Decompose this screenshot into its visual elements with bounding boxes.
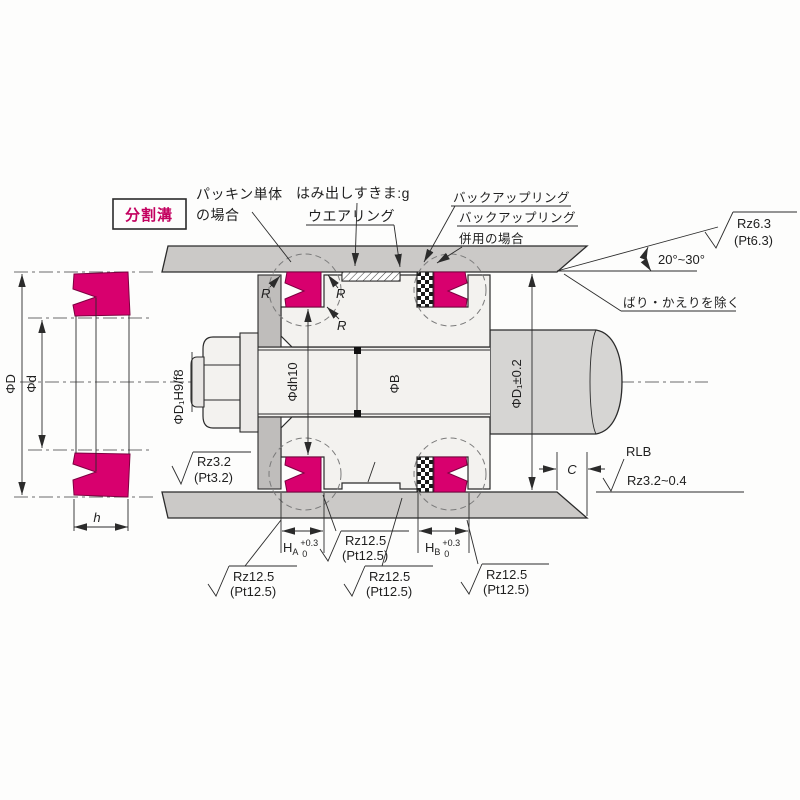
rlb-label: RLB (626, 444, 651, 459)
drawing-canvas: ΦD Φd h (0, 0, 800, 800)
cylinder-tube-bottom (162, 492, 587, 518)
rz125-label-1: Rz12.5 (345, 533, 386, 548)
seal-profile-top (73, 272, 130, 316)
rlb-range-label: Rz3.2~0.4 (627, 473, 687, 488)
packing-bottom-left (285, 457, 321, 492)
rod-stud-end (191, 357, 204, 407)
packing-only-label-1: パッキン単体 (196, 186, 283, 202)
dim-square-shank-bottom (354, 410, 361, 417)
packing-top-left (285, 272, 321, 307)
deburr-leader (564, 274, 621, 311)
packing-only-label-2: の場合 (196, 207, 240, 223)
retainer-plate-lower (258, 417, 281, 489)
dim-label-c: C (567, 462, 577, 477)
roughness-check-rz125-3 (344, 566, 365, 596)
r-label-3: R (337, 318, 346, 333)
dim-label-bore: ΦD₁±0.2 (509, 359, 524, 408)
hb-tol-dn: 0 (444, 549, 449, 559)
rz125-label-3: Rz12.5 (369, 569, 410, 584)
dim-label-shank: ΦB (387, 374, 402, 393)
pt125-label-3: (Pt12.5) (366, 584, 412, 599)
washer (240, 333, 258, 432)
backup-ring-top (417, 272, 433, 307)
seal-installation-diagram: ΦD Φd h (0, 0, 800, 800)
dim-label-fit-spec: ΦD₁H9/f8 (171, 369, 186, 424)
backup-combined-label-2: 併用の場合 (459, 231, 524, 246)
pt125-label-2: (Pt12.5) (230, 584, 276, 599)
r-label-2: R (336, 286, 345, 301)
hb-tol-up: +0.3 (442, 538, 460, 548)
dim-label-seal-id: Φd (24, 375, 39, 393)
roughness-check-rz125-4 (461, 564, 482, 594)
rz63-label: Rz6.3 (737, 216, 771, 231)
chamfer-annotations: 20°~30° Rz6.3 (Pt6.3) ばり・かえりを除く (557, 212, 797, 311)
ha-tol-up: +0.3 (300, 538, 318, 548)
backup-ring-label: バックアップリング (453, 191, 570, 205)
rz125-leader-2 (245, 520, 281, 566)
dim-label-h: h (93, 510, 100, 525)
hb-sub: B (434, 547, 440, 557)
roughness-check-rlb (603, 459, 624, 491)
rz125-label-4: Rz12.5 (486, 567, 527, 582)
extrusion-gap-label: はみ出しすきま:g (296, 185, 410, 201)
split-groove-label: 分割溝 (125, 206, 173, 224)
roughness-check-rz125-2 (208, 566, 229, 596)
rz125-label-2: Rz12.5 (233, 569, 274, 584)
deburr-label: ばり・かえりを除く (623, 295, 740, 310)
backup-combined-label-1: バックアップリング (459, 211, 576, 225)
packing-top-right (434, 272, 467, 307)
backup-ring-bottom (417, 457, 433, 492)
rz32-label: Rz3.2 (197, 454, 231, 469)
seal-profile-bottom (73, 453, 130, 497)
roughness-check-rz32 (172, 452, 193, 484)
seal-section-view: ΦD Φd h (3, 272, 130, 531)
ha-tol-dn: 0 (302, 549, 307, 559)
hex-nut (203, 337, 240, 428)
wear-ring-label: ウエアリング (308, 208, 395, 224)
pt32-label: (Pt3.2) (194, 470, 233, 485)
roughness-check-rz63 (705, 212, 733, 248)
dim-label-groove-root: Φdh10 (285, 362, 300, 401)
roughness-check-rz125-1 (320, 531, 341, 561)
ha-base: H (283, 540, 292, 555)
dim-label-seal-od: ΦD (3, 374, 18, 394)
dim-label-hb: HB+0.30 (425, 538, 460, 559)
pt125-label-4: (Pt12.5) (483, 582, 529, 597)
angle-arc (646, 247, 651, 271)
wear-ring-strip (342, 272, 400, 281)
r-label-1: R (261, 286, 270, 301)
pt63-label: (Pt6.3) (734, 233, 773, 248)
ha-sub: A (292, 547, 298, 557)
packing-bottom-right (434, 457, 467, 492)
pt125-label-1: (Pt12.5) (342, 548, 388, 563)
dim-square-shank-top (354, 347, 361, 354)
angle-label: 20°~30° (658, 252, 705, 267)
dim-label-ha: HA+0.30 (283, 538, 318, 559)
cylinder-tube-top (162, 246, 587, 272)
hb-base: H (425, 540, 434, 555)
